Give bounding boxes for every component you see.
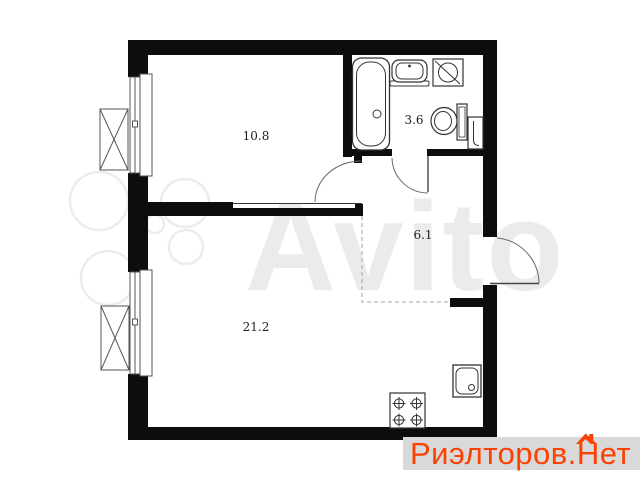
water-heater-icon [468, 117, 483, 149]
floorplan-drawing: 10.8 3.6 6.1 21.2 [0, 0, 640, 480]
bathroom-door-swing-icon [392, 156, 428, 193]
window-sill [140, 74, 152, 176]
door-jamb-top [354, 156, 362, 163]
wall-right-b [483, 285, 497, 427]
ac-basket-icon-1 [100, 109, 128, 170]
door-jamb-bottom [355, 204, 363, 216]
hallway-area-label: 6.1 [413, 228, 432, 242]
outer-walls [128, 40, 497, 440]
kitchen-wall-stub [450, 298, 483, 307]
mid-wall-thick [148, 202, 233, 216]
roof-icon [576, 433, 599, 444]
washbasin-icon [390, 60, 429, 86]
window-handle [133, 121, 138, 127]
bathtub-icon [353, 58, 390, 150]
floorplan-canvas: Avito [0, 0, 640, 480]
bathroom-bottom-wall-right [427, 149, 483, 156]
bathroom-area-label: 3.6 [404, 113, 423, 127]
room-area-label: 10.8 [243, 129, 270, 143]
realtor-watermark: Риэлторов.Нет [403, 437, 640, 470]
wall-top [128, 40, 497, 55]
realtor-watermark-text-1: Риэлторов. [410, 436, 577, 471]
ac-basket-icon-2 [101, 306, 129, 370]
wall-left-a [128, 40, 148, 77]
realtor-watermark-letter-n: Н [577, 437, 600, 470]
window-handle [133, 319, 138, 325]
wall-right-a [483, 40, 497, 237]
kitchen-sink-icon [453, 365, 481, 397]
wall-left-c [128, 374, 148, 427]
bathroom-left-wall [343, 55, 352, 157]
realtor-watermark-text-2: ет [600, 436, 631, 471]
room-door-swing-icon [315, 161, 361, 202]
wall-left-b [128, 173, 148, 272]
washing-machine-icon [433, 59, 463, 86]
kitchen-zone-dashed-boundary [362, 216, 450, 302]
window-2 [130, 270, 152, 376]
entrance-door-swing-icon [490, 238, 539, 284]
living-kitchen-area-label: 21.2 [243, 320, 270, 334]
toilet-icon [431, 104, 467, 140]
interior-walls [148, 55, 483, 307]
mid-wall-thin [233, 208, 355, 216]
window-1 [130, 74, 152, 176]
window-sill [140, 270, 152, 376]
stove-icon [390, 393, 425, 428]
